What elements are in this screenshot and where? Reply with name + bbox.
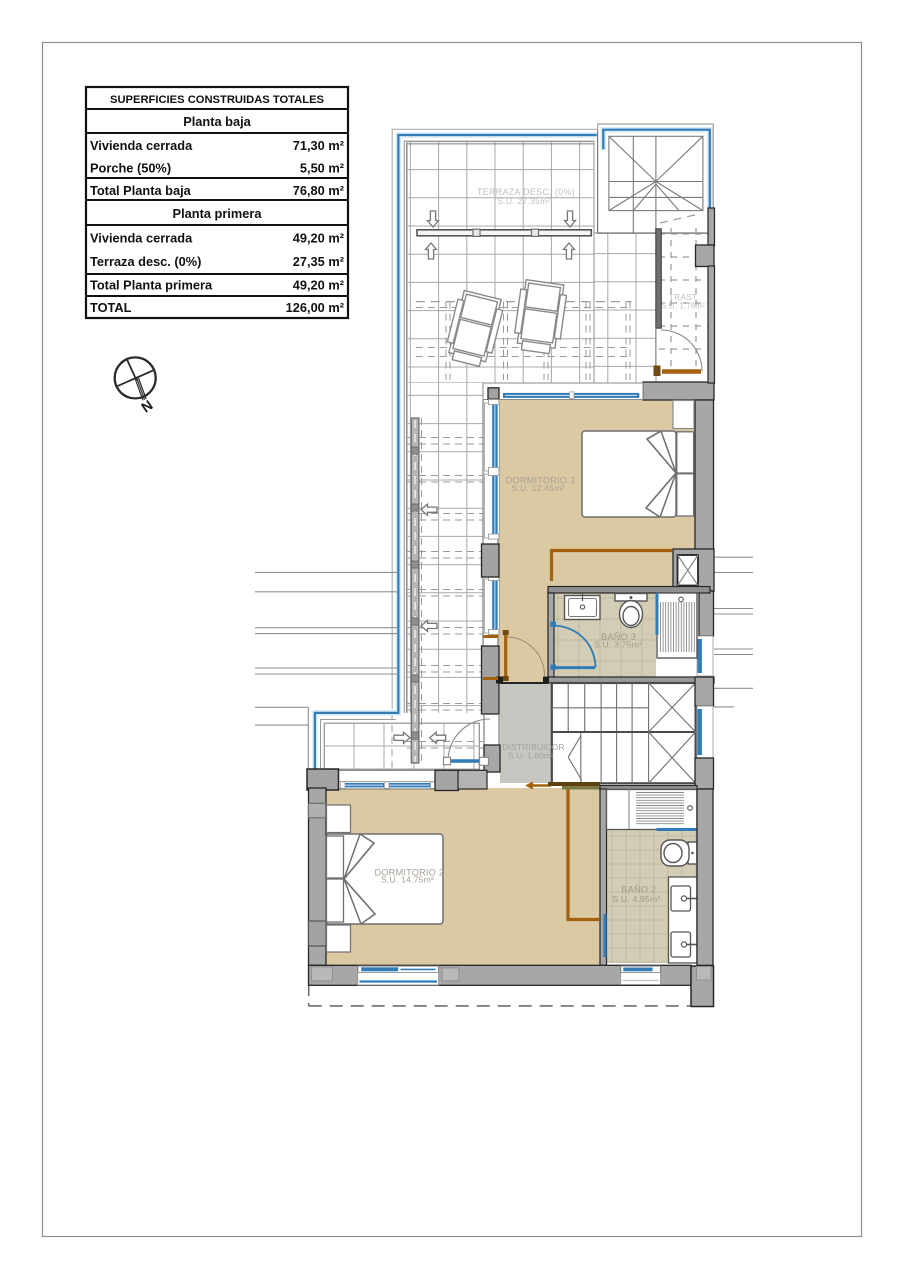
svg-text:Planta primera: Planta primera	[173, 206, 263, 221]
svg-text:S.U. 1.76m²: S.U. 1.76m²	[661, 302, 705, 311]
svg-text:SUPERFICIES CONSTRUIDAS TOTALE: SUPERFICIES CONSTRUIDAS TOTALES	[110, 94, 325, 106]
svg-text:49,20 m²: 49,20 m²	[293, 278, 344, 293]
svg-text:Vivienda cerrada: Vivienda cerrada	[90, 138, 193, 153]
svg-text:BAÑO 2: BAÑO 2	[621, 884, 656, 894]
svg-text:Planta baja: Planta baja	[183, 114, 251, 129]
svg-text:S.U. 1.80m²: S.U. 1.80m²	[508, 752, 554, 761]
svg-text:5,50 m²: 5,50 m²	[300, 161, 344, 176]
svg-text:49,20 m²: 49,20 m²	[293, 231, 344, 246]
svg-text:S.U. 3.75m²: S.U. 3.75m²	[594, 640, 642, 650]
svg-text:DISTRIBUIDOR: DISTRIBUIDOR	[502, 742, 564, 752]
svg-text:Total Planta primera: Total Planta primera	[90, 278, 213, 293]
svg-text:71,30 m²: 71,30 m²	[293, 138, 344, 153]
svg-text:27,35 m²: 27,35 m²	[293, 254, 344, 269]
svg-text:76,80 m²: 76,80 m²	[293, 183, 344, 198]
svg-text:S.U. 12.45m²: S.U. 12.45m²	[511, 483, 564, 493]
svg-text:126,00 m²: 126,00 m²	[286, 300, 344, 315]
svg-text:S.U. 14.75m²: S.U. 14.75m²	[381, 875, 434, 885]
svg-text:Terraza desc. (0%): Terraza desc. (0%)	[90, 254, 201, 269]
svg-text:TOTAL: TOTAL	[90, 300, 132, 315]
svg-text:S.U. 27.35m²: S.U. 27.35m²	[498, 196, 551, 206]
svg-text:Porche (50%): Porche (50%)	[90, 161, 171, 176]
svg-text:S.U. 4.95m²: S.U. 4.95m²	[612, 894, 660, 904]
svg-text:Total Planta baja: Total Planta baja	[90, 183, 192, 198]
svg-text:Vivienda cerrada: Vivienda cerrada	[90, 231, 193, 246]
